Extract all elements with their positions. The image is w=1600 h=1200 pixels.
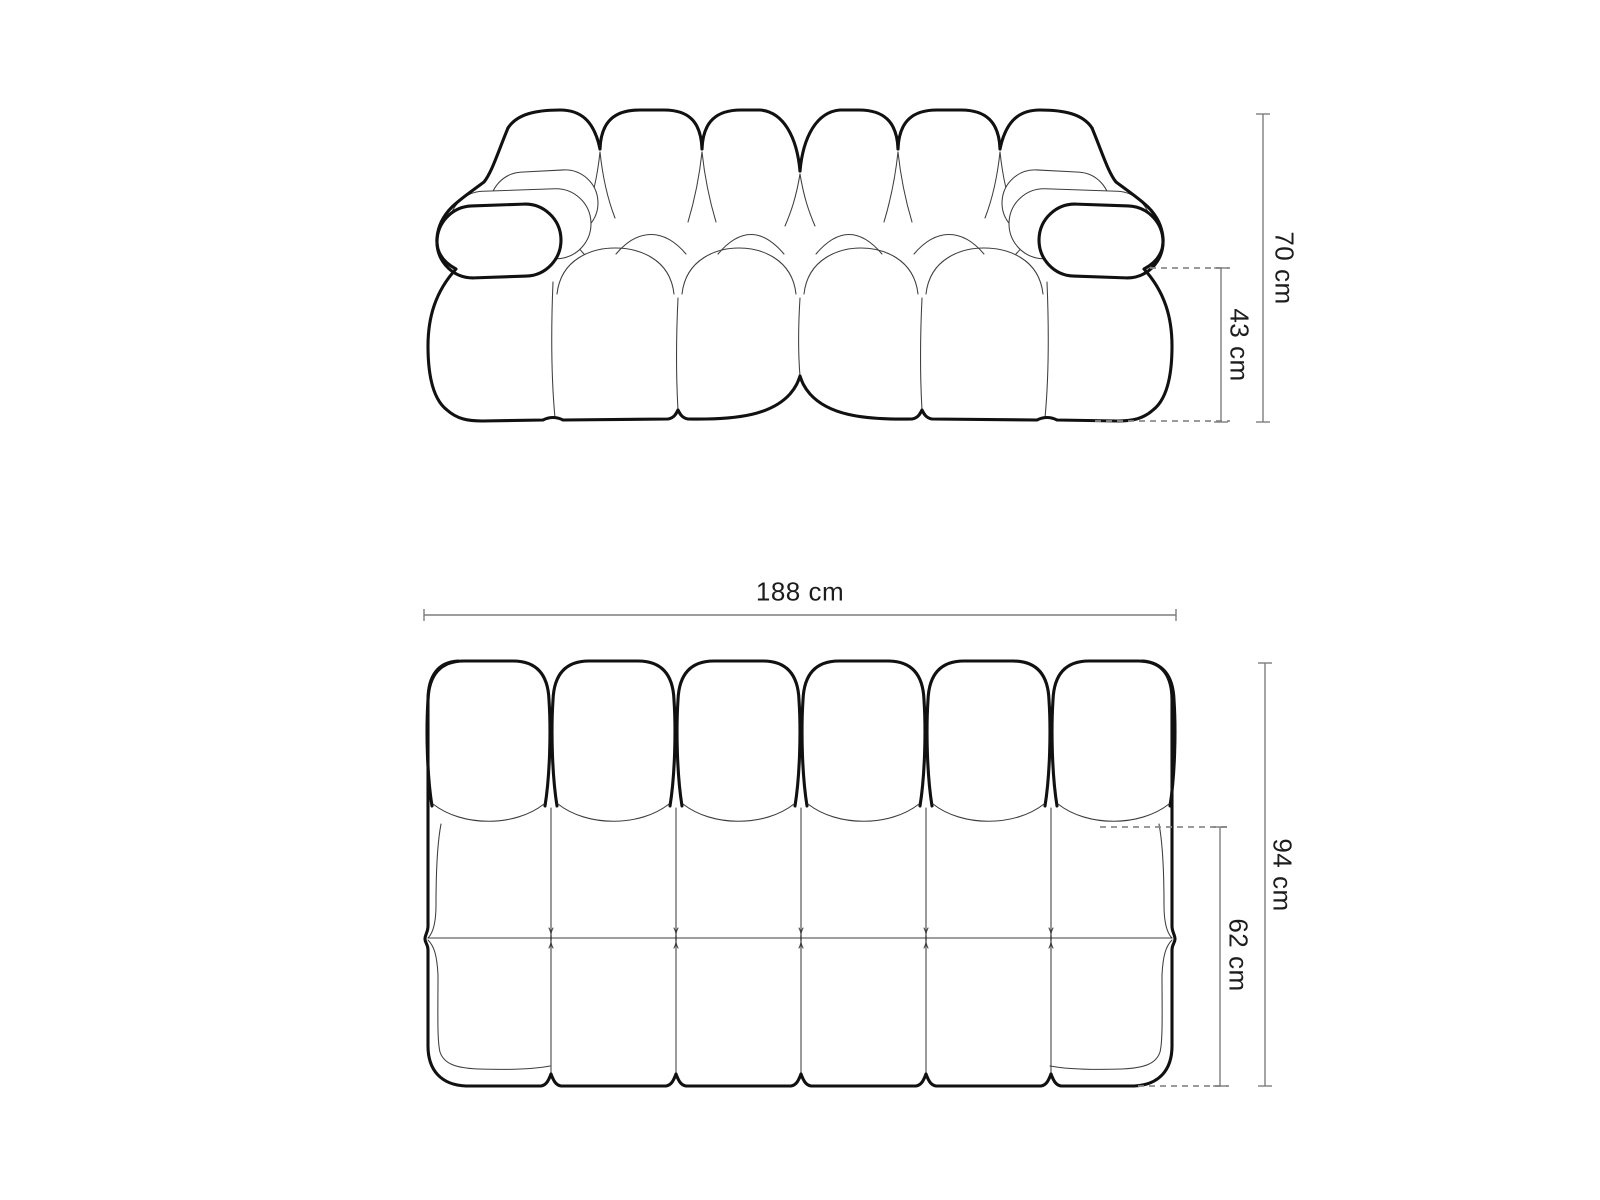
dimension-label-plan-seat-depth: 62 cm <box>1223 918 1254 991</box>
front-right-armrest <box>1000 168 1164 279</box>
front-wedge-cushion-arcs <box>518 235 1082 255</box>
dimension-label-front-seat-height: 43 cm <box>1224 308 1255 381</box>
front-seat-seams <box>552 282 1049 418</box>
front-left-armrest <box>436 168 600 279</box>
top-width-dim-line <box>424 609 1176 621</box>
dimension-label-plan-total-depth: 94 cm <box>1267 838 1298 911</box>
top-view-dimension-lines <box>1100 663 1272 1086</box>
front-seat-cushion-arcs <box>557 248 1043 294</box>
top-view-drawing <box>424 609 1176 1086</box>
front-back-cushion-tops <box>508 110 1092 171</box>
front-view-drawing <box>428 110 1172 421</box>
dimension-label-plan-width: 188 cm <box>756 577 844 608</box>
dimension-label-front-total-height: 70 cm <box>1269 231 1300 304</box>
sofa-dimension-drawing: 70 cm 43 cm 188 cm 94 cm 62 cm <box>0 0 1600 1200</box>
plan-back-cushion-row <box>427 661 1175 806</box>
